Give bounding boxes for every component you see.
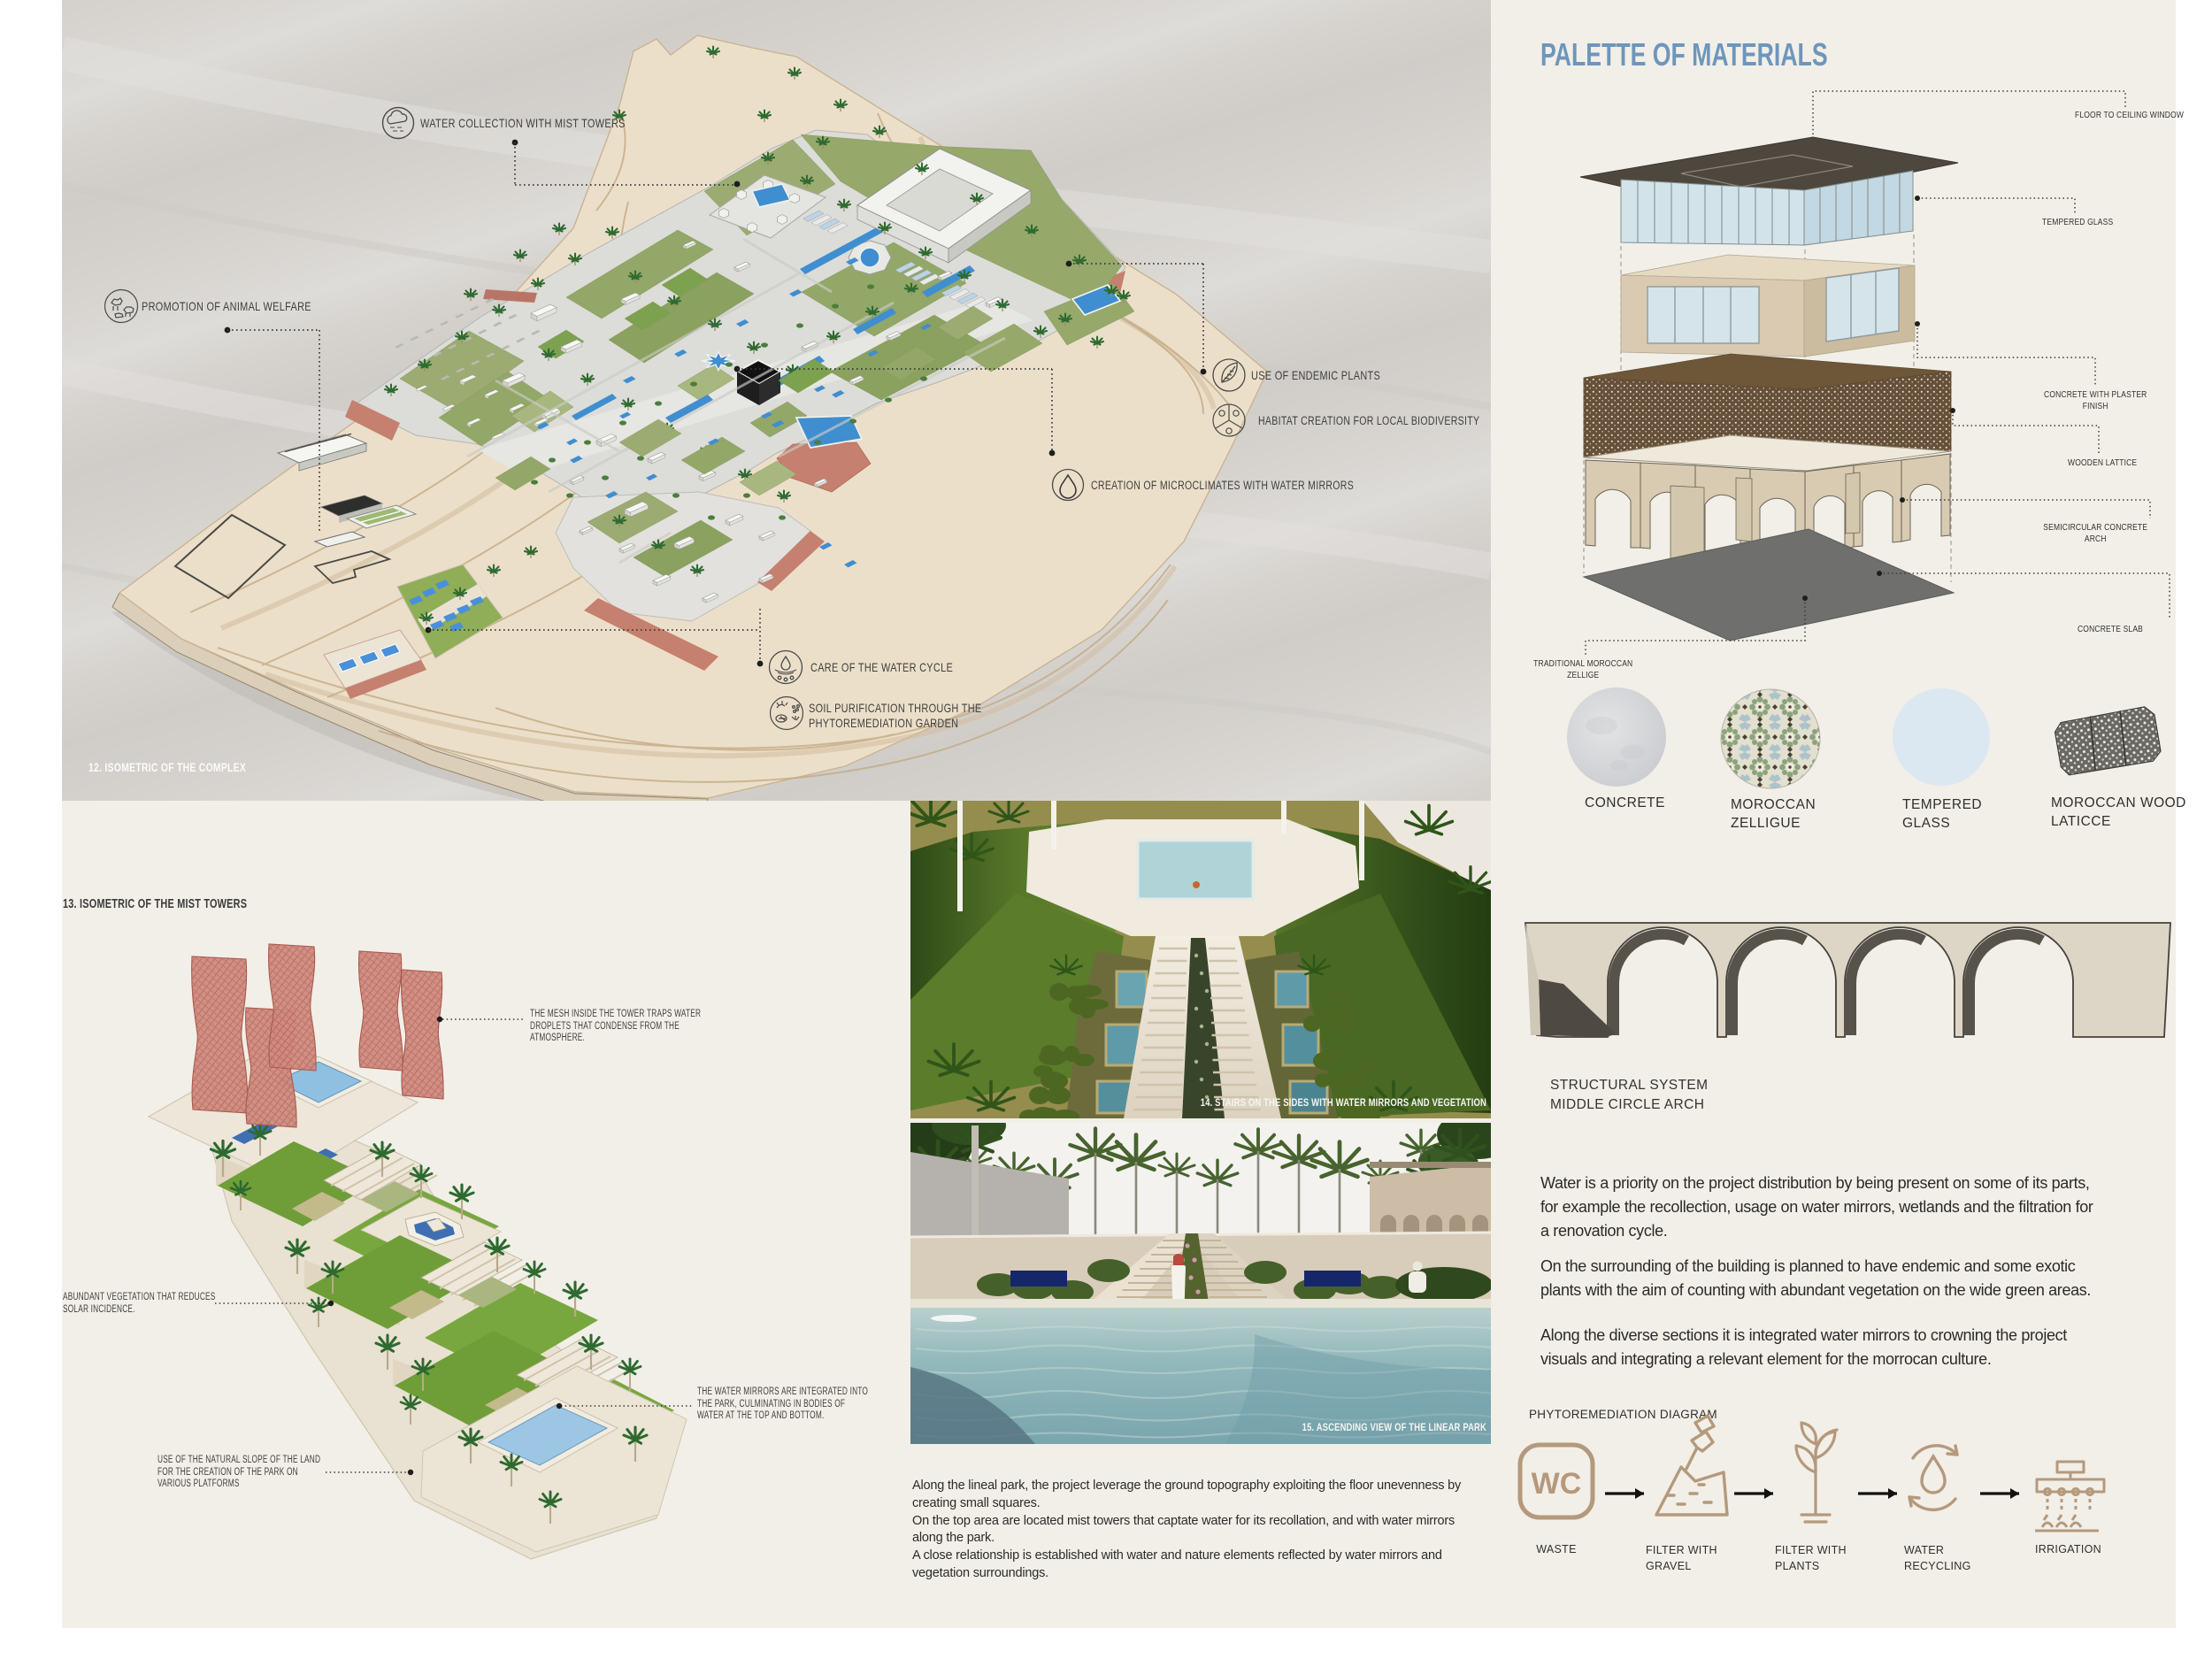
svg-text:WC: WC [1532,1467,1582,1501]
